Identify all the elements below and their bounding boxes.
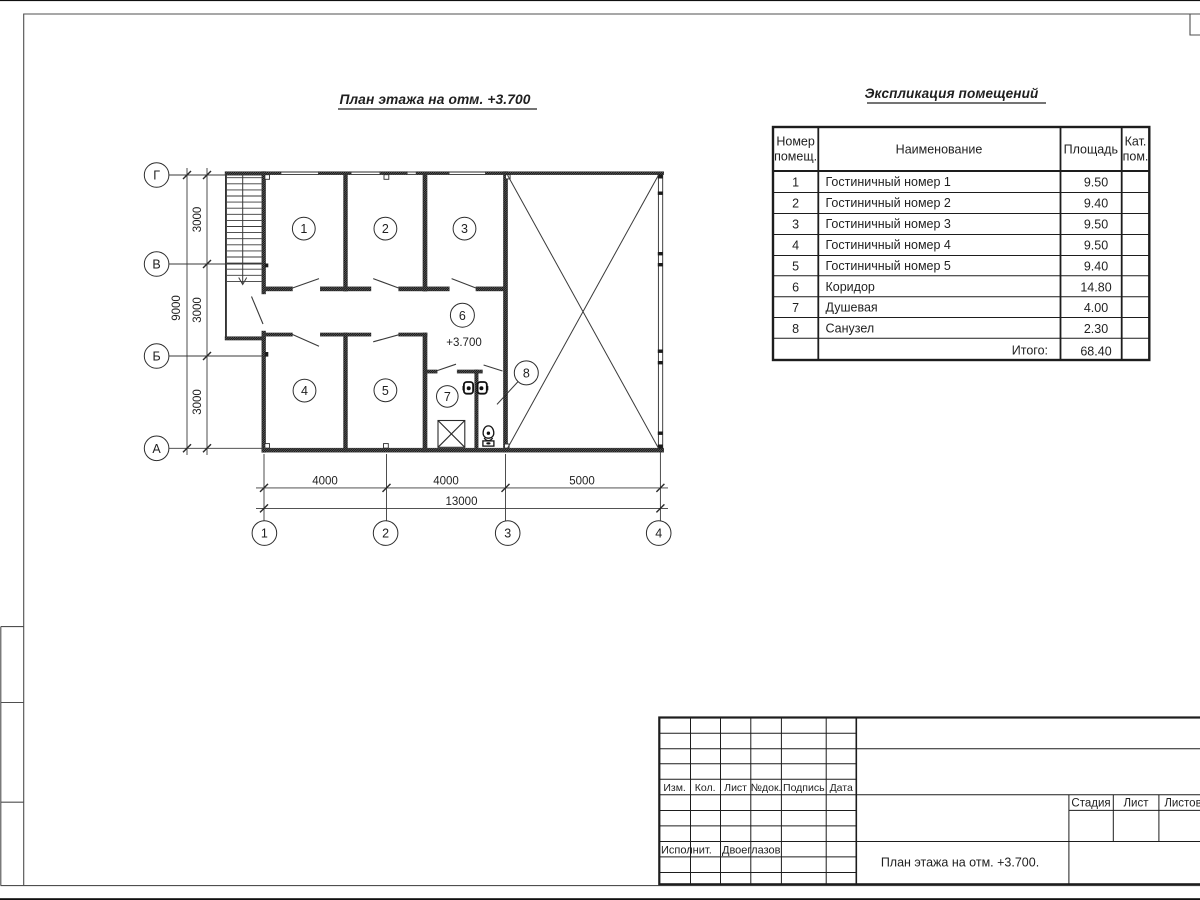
svg-text:6: 6 [792,280,799,294]
svg-text:№док.: №док. [751,782,782,794]
svg-text:Двоеглазов: Двоеглазов [722,845,781,857]
svg-text:Наименование: Наименование [896,143,983,157]
svg-text:4.00: 4.00 [1084,301,1108,315]
svg-text:3: 3 [461,222,468,236]
svg-text:8: 8 [523,366,530,380]
svg-text:4000: 4000 [312,475,338,487]
svg-text:2: 2 [382,222,389,236]
svg-text:+3.700: +3.700 [446,337,482,349]
svg-text:9.50: 9.50 [1084,218,1108,232]
svg-text:8: 8 [792,322,799,336]
svg-text:Душевая: Душевая [826,301,878,315]
svg-text:3: 3 [504,527,511,541]
svg-text:1: 1 [792,176,799,190]
svg-text:5000: 5000 [569,475,595,487]
svg-text:помещ.: помещ. [774,150,817,164]
svg-text:План этажа на отм. +3.700: План этажа на отм. +3.700 [339,92,530,107]
svg-text:4000: 4000 [433,475,459,487]
svg-text:Изм.: Изм. [663,782,686,794]
svg-text:Санузел: Санузел [826,322,875,336]
svg-text:Гостиничный номер 5: Гостиничный номер 5 [826,259,951,273]
svg-text:Подпись: Подпись [783,782,825,794]
svg-text:пом.: пом. [1123,150,1149,164]
svg-text:Гостиничный номер 3: Гостиничный номер 3 [826,217,951,231]
svg-text:5: 5 [792,260,799,274]
svg-text:Лист: Лист [724,782,747,794]
svg-text:Гостиничный номер 1: Гостиничный номер 1 [826,175,951,189]
svg-text:А: А [152,442,161,456]
svg-text:7: 7 [792,301,799,315]
svg-text:3000: 3000 [192,389,204,415]
svg-text:14.80: 14.80 [1080,280,1111,294]
svg-text:Исполнит.: Исполнит. [661,845,712,857]
svg-text:2: 2 [382,527,389,541]
svg-text:9.40: 9.40 [1084,197,1108,211]
svg-text:Экспликация помещений: Экспликация помещений [865,86,1039,101]
svg-text:2.30: 2.30 [1084,322,1108,336]
svg-text:3000: 3000 [192,297,204,323]
svg-text:9.50: 9.50 [1084,239,1108,253]
svg-text:Кат.: Кат. [1125,135,1147,149]
svg-text:7: 7 [444,390,451,404]
svg-text:5: 5 [382,384,389,398]
svg-text:13000: 13000 [446,496,478,508]
svg-text:Итого:: Итого: [1012,344,1048,358]
svg-text:68.40: 68.40 [1080,345,1111,359]
svg-text:Гостиничный номер 2: Гостиничный номер 2 [826,196,951,210]
svg-text:Площадь: Площадь [1064,143,1118,157]
svg-text:Дата: Дата [830,782,853,794]
svg-text:Кол.: Кол. [695,782,716,794]
svg-text:План этажа на отм. +3.700.: План этажа на отм. +3.700. [881,856,1039,870]
svg-text:Г: Г [153,169,160,183]
svg-text:1: 1 [261,527,268,541]
svg-text:9.50: 9.50 [1084,176,1108,190]
svg-text:2: 2 [792,197,799,211]
svg-text:Номер: Номер [776,135,815,149]
svg-text:Лист: Лист [1124,798,1150,810]
svg-text:9000: 9000 [171,295,183,321]
svg-text:Гостиничный номер 4: Гостиничный номер 4 [826,238,951,252]
svg-text:Стадия: Стадия [1071,798,1110,810]
svg-text:Б: Б [152,350,160,364]
svg-text:4: 4 [655,527,662,541]
svg-text:3000: 3000 [192,207,204,233]
svg-text:В: В [152,258,160,272]
svg-text:Коридор: Коридор [826,280,875,294]
svg-text:4: 4 [301,384,308,398]
svg-text:4: 4 [792,239,799,253]
svg-text:6: 6 [459,309,466,323]
svg-text:9.40: 9.40 [1084,260,1108,274]
svg-text:1: 1 [300,222,307,236]
svg-text:Листов: Листов [1164,798,1200,810]
svg-text:3: 3 [792,218,799,232]
